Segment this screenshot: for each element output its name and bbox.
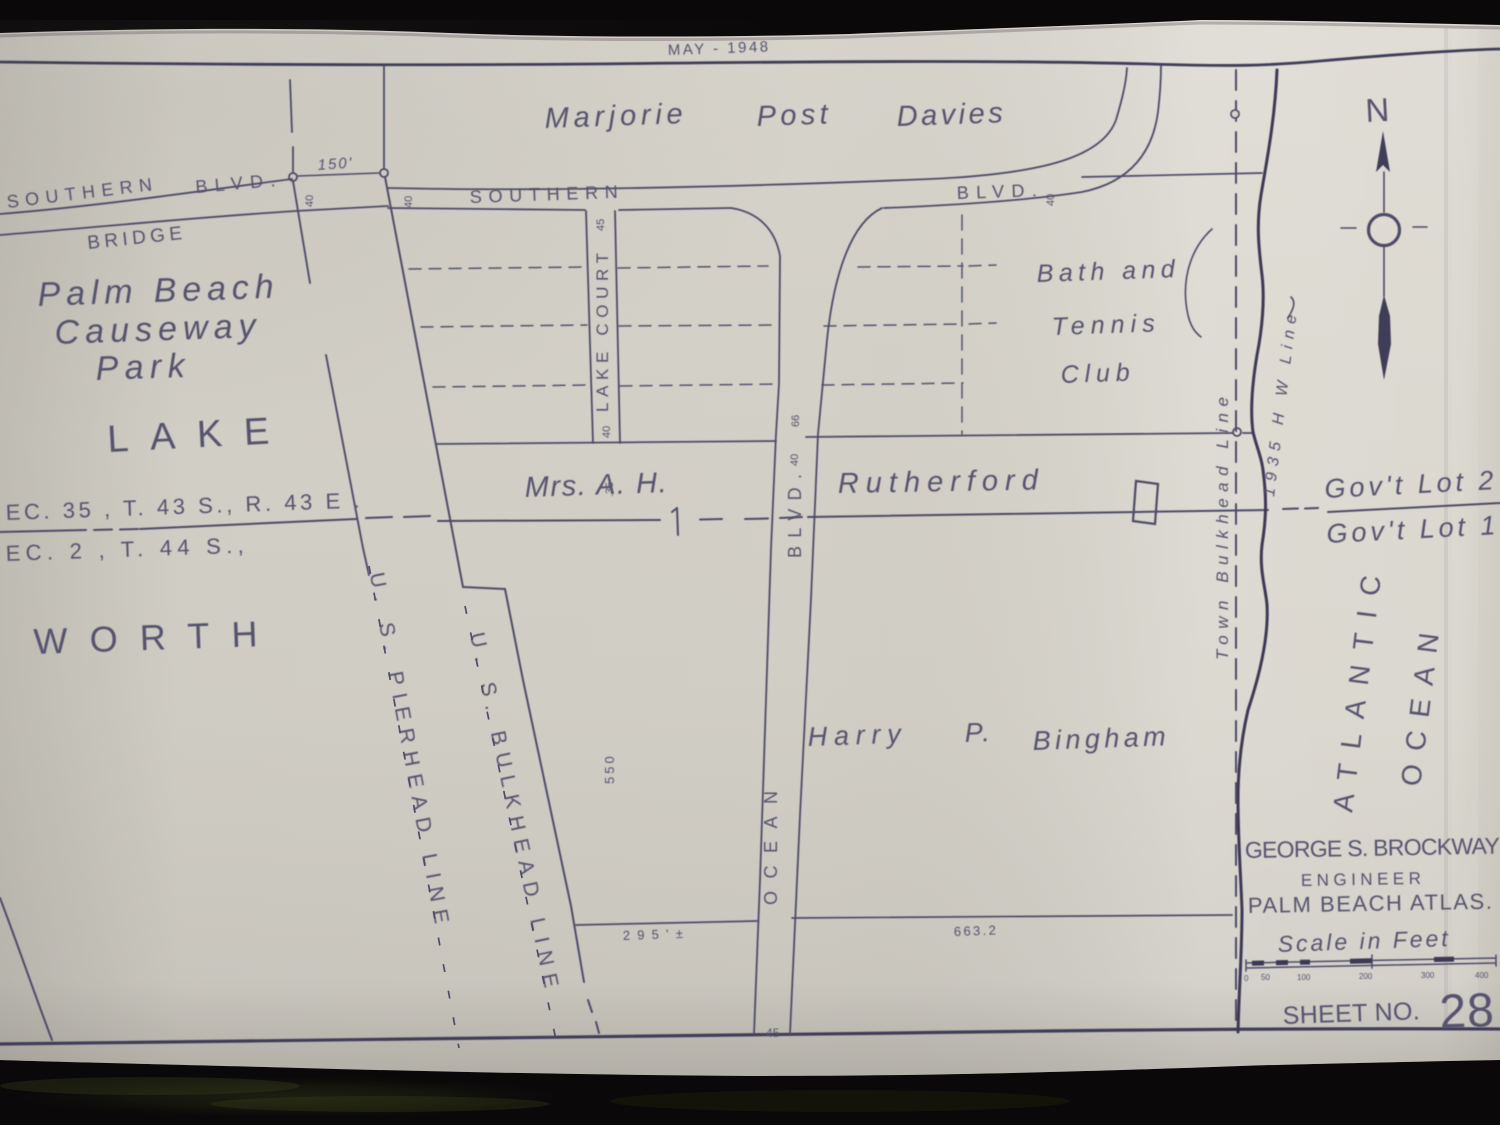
svg-text:SHEET NO.: SHEET NO.: [1282, 997, 1426, 1030]
svg-text:40: 40: [601, 426, 613, 438]
svg-text:Harry: Harry: [807, 719, 905, 752]
svg-text:Rutherford: Rutherford: [838, 464, 1043, 500]
svg-text:663.2: 663.2: [954, 922, 998, 939]
svg-text:400: 400: [1475, 971, 1489, 980]
svg-text:66: 66: [790, 415, 802, 427]
svg-text:40: 40: [304, 195, 316, 207]
svg-text:45: 45: [766, 1026, 780, 1040]
svg-text:50: 50: [1261, 973, 1270, 982]
svg-text:GEORGE S. BROCKWAY: GEORGE S. BROCKWAY: [1245, 833, 1500, 863]
svg-text:MAY - 1948: MAY - 1948: [668, 38, 771, 59]
svg-text:0: 0: [1244, 974, 1249, 983]
svg-text:Davies: Davies: [896, 97, 1006, 133]
svg-text:Post: Post: [756, 98, 831, 133]
svg-text:OCEAN: OCEAN: [761, 787, 781, 905]
svg-text:100: 100: [1297, 973, 1311, 982]
svg-text:WORTH: WORTH: [33, 613, 274, 662]
svg-text:PALM BEACH ATLAS.: PALM BEACH ATLAS.: [1248, 889, 1493, 918]
svg-text:150': 150': [317, 155, 354, 174]
svg-text:Bingham: Bingham: [1032, 721, 1170, 756]
svg-text:40: 40: [1045, 194, 1057, 206]
svg-text:550: 550: [602, 753, 617, 784]
svg-text:P.: P.: [964, 717, 993, 748]
svg-text:28: 28: [1439, 984, 1496, 1039]
svg-text:200: 200: [1359, 972, 1373, 981]
svg-text:N: N: [1364, 91, 1390, 129]
svg-text:45: 45: [595, 219, 607, 231]
svg-text:Mrs. A. H.: Mrs. A. H.: [524, 467, 671, 504]
svg-text:LAKE COURT: LAKE COURT: [593, 250, 612, 412]
svg-text:ENGINEER: ENGINEER: [1301, 869, 1424, 890]
svg-text:Park: Park: [95, 347, 188, 388]
svg-text:300: 300: [1421, 971, 1435, 980]
svg-text:Club: Club: [1060, 359, 1133, 389]
svg-text:40: 40: [789, 454, 801, 466]
svg-text:40: 40: [403, 196, 415, 208]
